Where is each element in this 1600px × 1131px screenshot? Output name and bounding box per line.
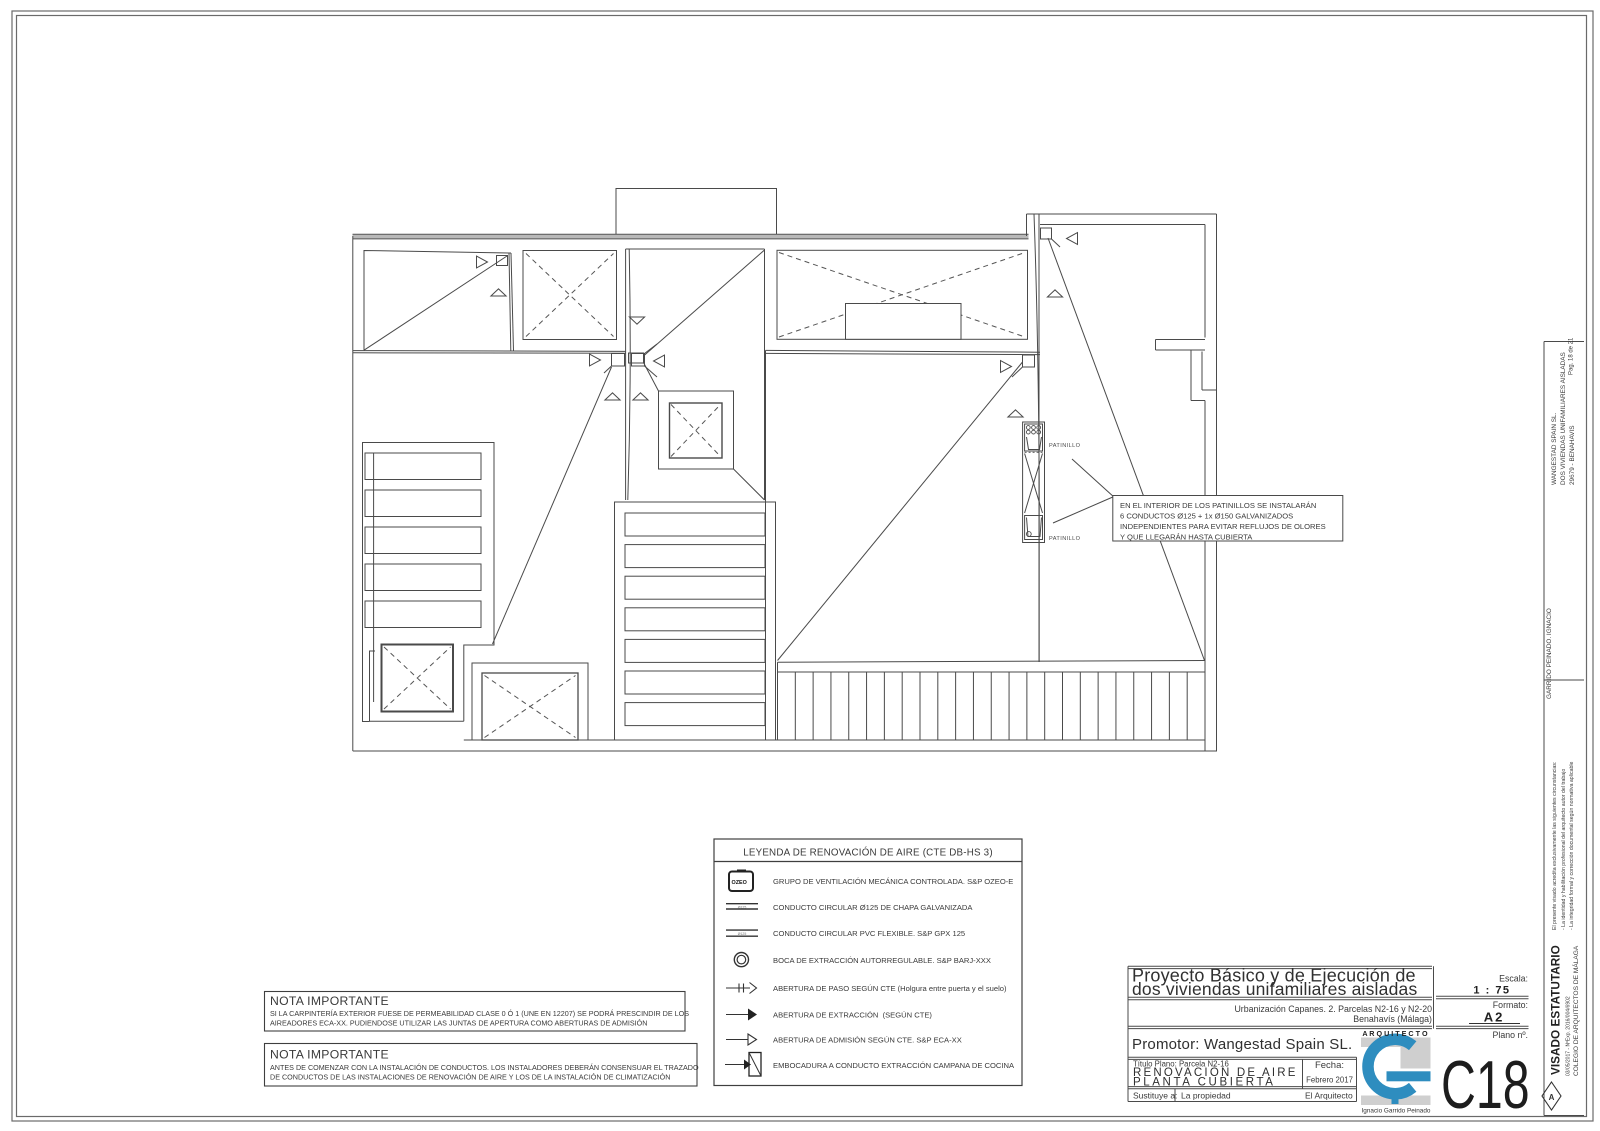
svg-text:Febrero 2017: Febrero 2017: [1306, 1076, 1353, 1085]
svg-text:Pag. 18 de 21: Pag. 18 de 21: [1569, 337, 1575, 375]
svg-text:El Arquitecto: El Arquitecto: [1305, 1091, 1353, 1101]
svg-text:DOS VIVIENDAS UNIFAMILIARES AI: DOS VIVIENDAS UNIFAMILIARES AISLADAS: [1560, 352, 1567, 485]
svg-text:Promotor: Wangestad Spain SL.: Promotor: Wangestad Spain SL.: [1132, 1036, 1352, 1053]
svg-text:EMBOCADURA A CONDUCTO EXTRACCI: EMBOCADURA A CONDUCTO EXTRACCIÓN CAMPANA…: [773, 1061, 1015, 1070]
svg-text:CONDUCTO CIRCULAR Ø125 DE CHAP: CONDUCTO CIRCULAR Ø125 DE CHAPA GALVANIZ…: [773, 903, 973, 912]
svg-text:03/05/2017 - NºExp. 2016/004/6: 03/05/2017 - NºExp. 2016/004/6902: [1566, 996, 1572, 1076]
svg-text:A R Q U I T E C T O: A R Q U I T E C T O: [1362, 1029, 1428, 1038]
svg-text:NOTA IMPORTANTE: NOTA IMPORTANTE: [270, 994, 389, 1008]
svg-text:Urbanización Capanes. 2. Parce: Urbanización Capanes. 2. Parcelas N2-16 …: [1234, 1004, 1432, 1014]
svg-text:C18: C18: [1441, 1048, 1530, 1123]
svg-text:GRUPO DE VENTILACIÓN MECÁNICA: GRUPO DE VENTILACIÓN MECÁNICA CONTROLADA…: [773, 877, 1013, 886]
svg-text:WANGESTAD SPAIN SL.: WANGESTAD SPAIN SL.: [1551, 412, 1558, 485]
svg-text:ABERTURA DE EXTRACCIÓN (SEGÚN: ABERTURA DE EXTRACCIÓN (SEGÚN CTE): [773, 1011, 932, 1020]
svg-text:ABERTURA DE ADMISIÓN SEGÚN CTE: ABERTURA DE ADMISIÓN SEGÚN CTE. S&P ECA-…: [773, 1036, 962, 1045]
svg-text:GARRIDO PEINADO. IGNACIO: GARRIDO PEINADO. IGNACIO: [1546, 608, 1553, 699]
svg-text:ABERTURA DE PASO SEGÚN CTE (Ho: ABERTURA DE PASO SEGÚN CTE (Holgura entr…: [773, 984, 1007, 993]
svg-text:LEYENDA DE RENOVACIÓN DE AIRE: LEYENDA DE RENOVACIÓN DE AIRE (CTE DB-HS…: [743, 848, 993, 859]
svg-text:Fecha:: Fecha:: [1315, 1060, 1344, 1071]
svg-text:NOTA IMPORTANTE: NOTA IMPORTANTE: [270, 1048, 389, 1062]
svg-text:Sustituye a:: Sustituye a:: [1133, 1091, 1177, 1101]
svg-text:La propiedad: La propiedad: [1181, 1091, 1231, 1101]
svg-text:Ø125: Ø125: [738, 905, 747, 909]
svg-text:PATINILLO: PATINILLO: [1049, 443, 1081, 449]
svg-text:COLEGIO DE ARQUITECTOS DE MÁLA: COLEGIO DE ARQUITECTOS DE MÁLAGA: [1571, 945, 1580, 1076]
svg-text:Benahavís (Málaga): Benahavís (Málaga): [1353, 1014, 1432, 1024]
svg-text:Ø125: Ø125: [738, 932, 747, 936]
svg-text:CONDUCTO CIRCULAR PVC FLEXIBLE: CONDUCTO CIRCULAR PVC FLEXIBLE. S&P GPX …: [773, 929, 965, 938]
svg-text:6 CONDUCTOS Ø125 + 1x Ø150 GAL: 6 CONDUCTOS Ø125 + 1x Ø150 GALVANIZADOS: [1120, 512, 1293, 521]
svg-text:AIREADORES ECA-XX. PUDIENDOSE: AIREADORES ECA-XX. PUDIENDOSE UTILIZAR L…: [270, 1019, 647, 1028]
svg-text:PLANTA CUBIERTA: PLANTA CUBIERTA: [1133, 1076, 1276, 1088]
svg-text:INDEPENDIENTES PARA EVITAR REF: INDEPENDIENTES PARA EVITAR REFLUJOS DE O…: [1120, 522, 1326, 531]
svg-text:- La identidad y habilitación: - La identidad y habilitación profesiona…: [1561, 769, 1567, 930]
svg-text:Y QUE LLEGARÁN HASTA CUBIERTA: Y QUE LLEGARÁN HASTA CUBIERTA: [1120, 533, 1253, 542]
svg-text:PATINILLO: PATINILLO: [1049, 536, 1081, 542]
svg-text:El presente visado acredita ex: El presente visado acredita exclusivamen…: [1552, 762, 1558, 930]
svg-text:BOCA DE EXTRACCIÓN AUTORREGULA: BOCA DE EXTRACCIÓN AUTORREGULABLE. S&P B…: [773, 956, 991, 965]
svg-text:- La integridad formal y corre: - La integridad formal y corrección docu…: [1569, 761, 1575, 930]
svg-text:29679 - BENAHAVIS: 29679 - BENAHAVIS: [1569, 425, 1576, 485]
svg-text:1 : 75: 1 : 75: [1473, 985, 1510, 997]
svg-text:VISADO ESTATUTARIO: VISADO ESTATUTARIO: [1549, 945, 1563, 1075]
svg-text:dos viviendas unifamiliares ai: dos viviendas unifamiliares aisladas: [1132, 979, 1417, 999]
svg-text:Ignacio Garrido Peinado: Ignacio Garrido Peinado: [1362, 1108, 1431, 1115]
svg-text:A2: A2: [1484, 1010, 1505, 1025]
svg-text:ANTES DE COMENZAR CON LA INSTA: ANTES DE COMENZAR CON LA INSTALACIÓN DE …: [270, 1063, 699, 1072]
svg-text:EN EL INTERIOR DE LOS PATINILL: EN EL INTERIOR DE LOS PATINILLOS SE INST…: [1120, 501, 1316, 510]
svg-text:SI LA CARPINTERÍA EXTERIOR FUE: SI LA CARPINTERÍA EXTERIOR FUESE DE PERM…: [270, 1009, 689, 1018]
svg-text:Plano nº.: Plano nº.: [1493, 1030, 1529, 1040]
svg-text:Formato:: Formato:: [1493, 1000, 1528, 1010]
svg-text:Escala:: Escala:: [1499, 974, 1528, 984]
svg-text:OZEO: OZEO: [732, 880, 747, 886]
svg-text:A: A: [1549, 1093, 1555, 1102]
svg-text:DE CONDUCTOS DE LAS INSTALACIO: DE CONDUCTOS DE LAS INSTALACIONES DE REN…: [270, 1073, 670, 1082]
